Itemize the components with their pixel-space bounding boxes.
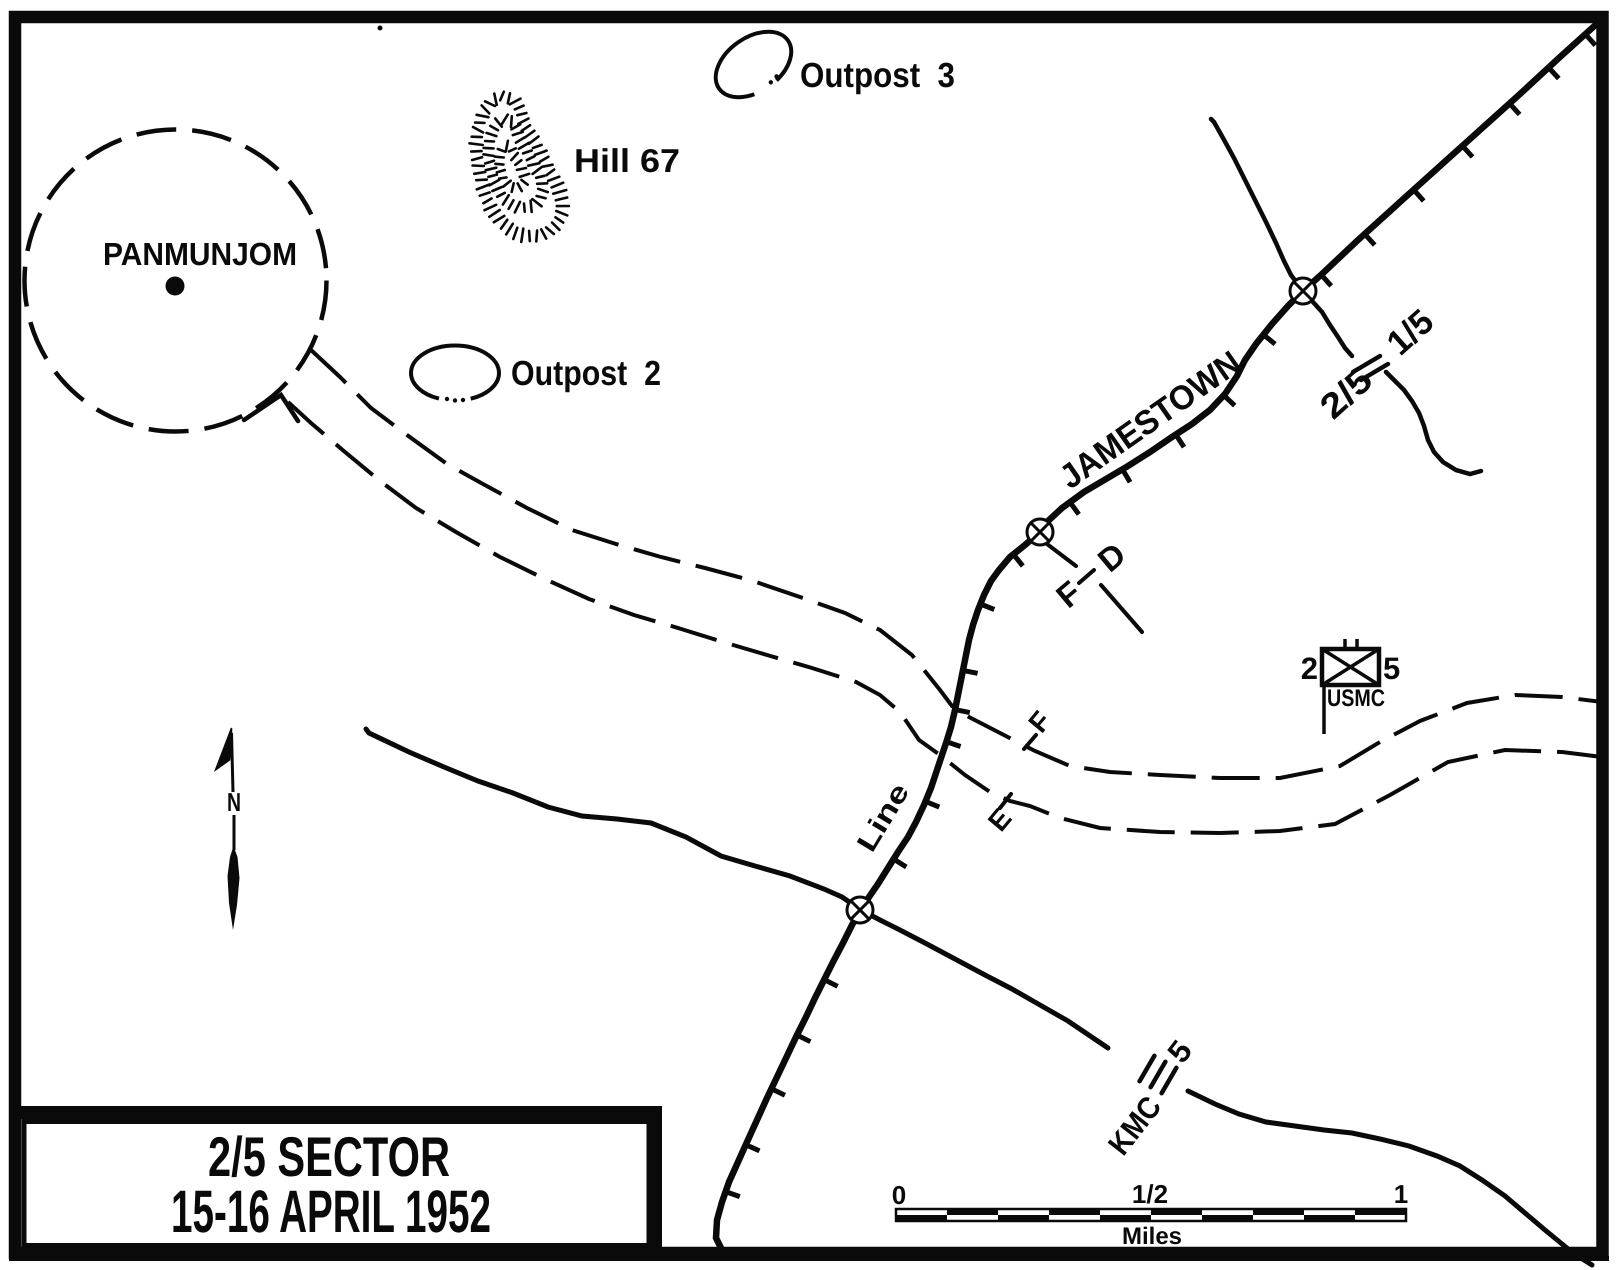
svg-text:Hill 67: Hill 67 [574, 142, 680, 179]
svg-text:Outpost 3: Outpost 3 [800, 56, 955, 95]
svg-text:1: 1 [1394, 1179, 1408, 1209]
svg-text:Miles: Miles [1122, 1223, 1182, 1250]
svg-text:N: N [227, 787, 241, 817]
svg-text:15-16 APRIL 1952: 15-16 APRIL 1952 [171, 1178, 491, 1245]
svg-text:Outpost 2: Outpost 2 [511, 354, 661, 393]
svg-text:5: 5 [1383, 651, 1400, 686]
svg-text:1/2: 1/2 [1132, 1179, 1168, 1209]
svg-text:PANMUNJOM: PANMUNJOM [103, 236, 297, 272]
svg-text:USMC: USMC [1327, 685, 1385, 712]
svg-text:0: 0 [892, 1180, 906, 1210]
svg-text:2: 2 [1301, 651, 1318, 686]
